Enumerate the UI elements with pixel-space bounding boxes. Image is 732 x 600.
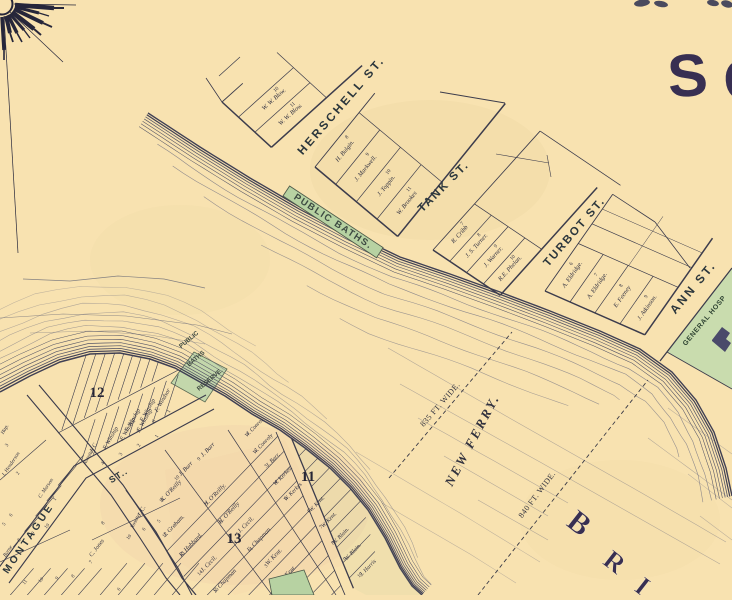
svg-text:12: 12 <box>90 385 105 401</box>
svg-text:11: 11 <box>301 469 315 485</box>
svg-text:S: S <box>665 41 710 111</box>
